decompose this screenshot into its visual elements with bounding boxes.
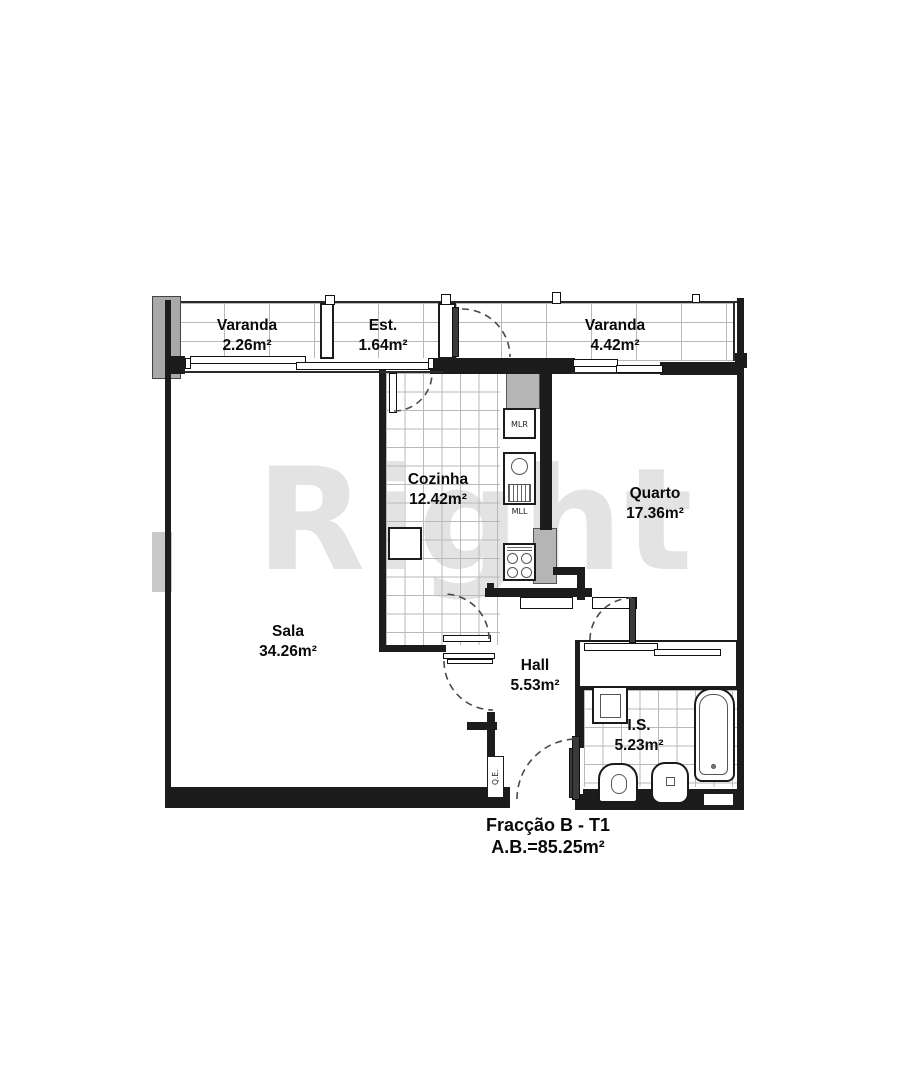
room-area: 2.26m²	[217, 336, 277, 356]
room-area: 34.26m²	[259, 642, 317, 662]
kitchen-balcony-door-arc	[394, 373, 432, 411]
room-area: 1.64m²	[358, 336, 407, 356]
kitchen-hall-door-arc	[444, 594, 489, 639]
room-label-cozinha: Cozinha 12.42m²	[408, 470, 468, 510]
room-label-est: Est. 1.64m²	[358, 316, 407, 356]
room-area: 12.42m²	[408, 490, 468, 510]
room-area: 5.53m²	[510, 676, 559, 696]
floorplan-canvas: Right MLR	[0, 0, 917, 1080]
plan-title: Fracção B - T1 A.B.=85.25m²	[486, 814, 610, 858]
room-label-varanda-right: Varanda 4.42m²	[585, 316, 645, 356]
quarto-door-arc	[590, 598, 632, 640]
sala-hall-door-arc	[444, 661, 493, 710]
room-name: Varanda	[585, 316, 645, 336]
room-area: 17.36m²	[626, 504, 684, 524]
room-label-quarto: Quarto 17.36m²	[626, 484, 684, 524]
room-name: Est.	[358, 316, 407, 336]
entry-door-arc	[517, 739, 577, 799]
room-label-hall: Hall 5.53m²	[510, 656, 559, 696]
room-area: 4.42m²	[585, 336, 645, 356]
room-label-is: I.S. 5.23m²	[614, 716, 663, 756]
room-area: 5.23m²	[614, 736, 663, 756]
room-name: I.S.	[614, 716, 663, 736]
room-name: Varanda	[217, 316, 277, 336]
room-label-varanda-left: Varanda 2.26m²	[217, 316, 277, 356]
room-name: Sala	[259, 622, 317, 642]
fraction-title: Fracção B - T1	[486, 814, 610, 836]
est-door-arc	[462, 309, 510, 357]
room-label-sala: Sala 34.26m²	[259, 622, 317, 662]
door-arc-layer	[0, 0, 917, 1080]
room-name: Quarto	[626, 484, 684, 504]
room-name: Cozinha	[408, 470, 468, 490]
gross-area: A.B.=85.25m²	[486, 836, 610, 858]
room-name: Hall	[510, 656, 559, 676]
